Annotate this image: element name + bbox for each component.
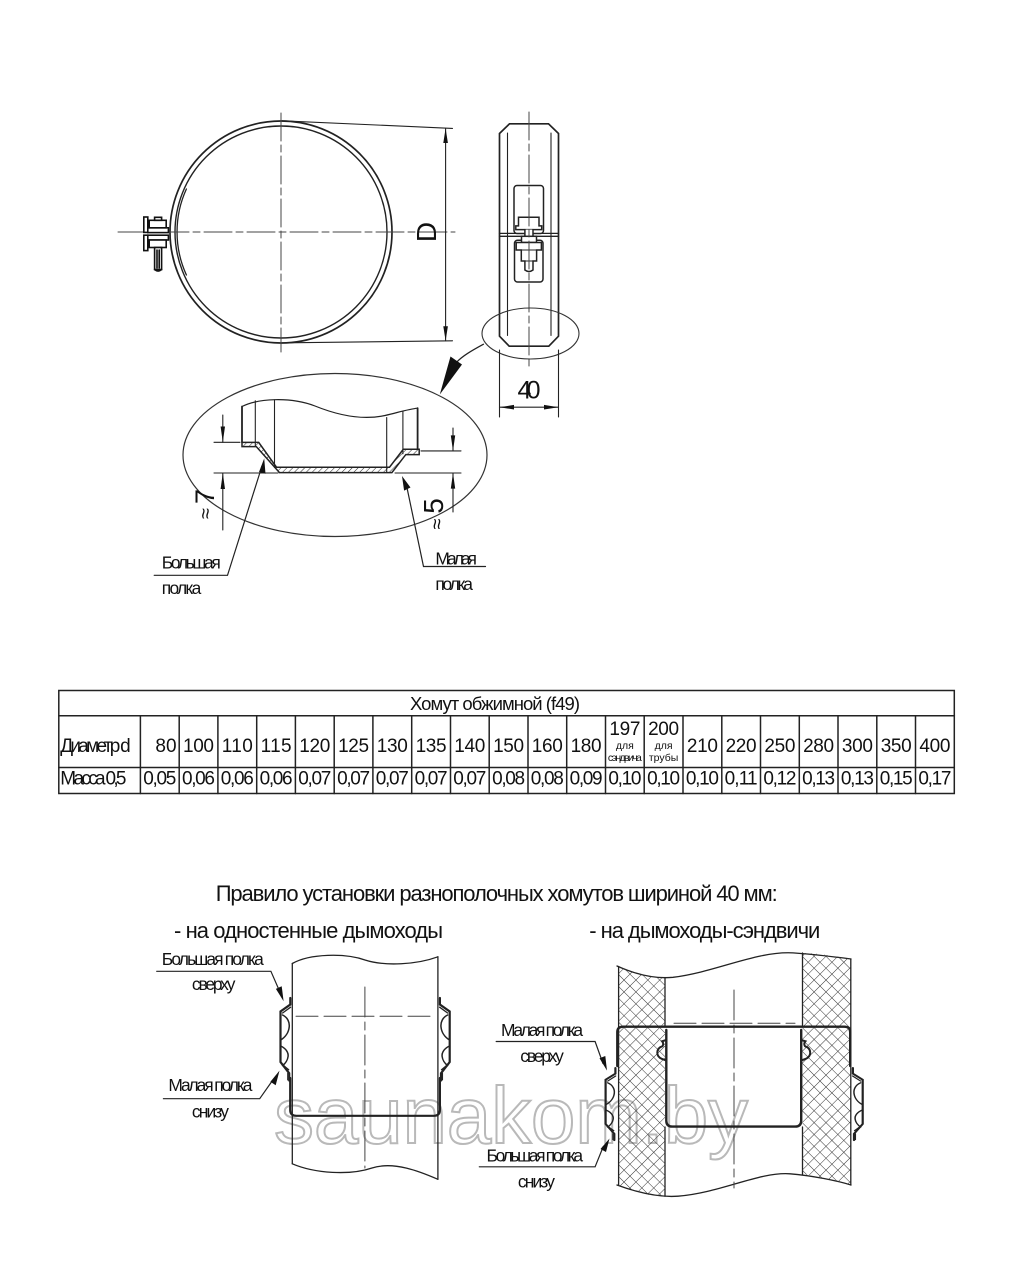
svg-text:Масса 0,5: Масса 0,5 [60, 769, 126, 790]
svg-text:0,13: 0,13 [841, 769, 874, 790]
svg-text:D: D [411, 222, 442, 242]
svg-text:5: 5 [418, 498, 449, 514]
svg-text:0,11: 0,11 [725, 769, 758, 790]
svg-text:40: 40 [518, 377, 541, 405]
svg-text:0,05: 0,05 [143, 769, 176, 790]
svg-text:снизу: снизу [192, 1102, 229, 1122]
svg-text:197: 197 [609, 719, 640, 740]
svg-text:0,10: 0,10 [647, 769, 680, 790]
svg-text:Малая: Малая [435, 549, 477, 569]
svg-text:130: 130 [377, 736, 408, 757]
svg-text:0,10: 0,10 [686, 769, 719, 790]
svg-text:0,06: 0,06 [182, 769, 215, 790]
svg-text:125: 125 [338, 736, 369, 757]
svg-text:снизу: снизу [518, 1172, 555, 1192]
svg-text:сверху: сверху [192, 974, 236, 994]
svg-text:для: для [616, 740, 634, 752]
svg-text:полка: полка [435, 574, 473, 594]
svg-text:140: 140 [454, 736, 485, 757]
svg-text:трубы: трубы [649, 752, 678, 764]
svg-text:0,06: 0,06 [260, 769, 293, 790]
svg-text:Большая полка: Большая полка [487, 1146, 584, 1166]
svg-text:350: 350 [881, 736, 912, 757]
svg-text:Малая полка: Малая полка [168, 1075, 252, 1095]
svg-text:Большая: Большая [162, 553, 221, 573]
svg-text:0,13: 0,13 [802, 769, 835, 790]
svg-text:0,10: 0,10 [608, 769, 641, 790]
svg-text:сверху: сверху [520, 1046, 564, 1066]
svg-text:135: 135 [416, 736, 447, 757]
svg-text:Диаметр d: Диаметр d [60, 736, 131, 757]
svg-text:150: 150 [493, 736, 524, 757]
svg-text:0,15: 0,15 [880, 769, 913, 790]
svg-text:250: 250 [764, 736, 795, 757]
svg-text:0,07: 0,07 [415, 769, 448, 790]
svg-text:200: 200 [648, 719, 679, 740]
svg-text:0,07: 0,07 [376, 769, 409, 790]
svg-text:115: 115 [261, 736, 292, 757]
svg-text:0,07: 0,07 [298, 769, 331, 790]
svg-text:220: 220 [726, 736, 757, 757]
svg-text:180: 180 [571, 736, 602, 757]
svg-text:100: 100 [183, 736, 214, 757]
svg-text:0,08: 0,08 [492, 769, 525, 790]
svg-text:сэндвича: сэндвича [608, 752, 642, 764]
svg-text:300: 300 [842, 736, 873, 757]
svg-text:280: 280 [803, 736, 834, 757]
svg-text:80: 80 [155, 736, 176, 757]
svg-text:Большая полка: Большая полка [162, 949, 264, 969]
svg-text:120: 120 [299, 736, 330, 757]
svg-text:160: 160 [532, 736, 563, 757]
svg-text:для: для [655, 740, 673, 752]
svg-text:- на одностенные дымоходы: - на одностенные дымоходы [174, 918, 443, 943]
svg-text:Хомут обжимной (f49): Хомут обжимной (f49) [410, 693, 580, 714]
svg-text:≈: ≈ [195, 508, 217, 519]
svg-text:0,06: 0,06 [221, 769, 254, 790]
svg-text:0,07: 0,07 [453, 769, 486, 790]
svg-text:полка: полка [162, 578, 202, 598]
svg-text:- на дымоходы-сэндвичи: - на дымоходы-сэндвичи [589, 918, 820, 943]
svg-text:0,07: 0,07 [337, 769, 370, 790]
svg-text:≈: ≈ [427, 518, 449, 529]
svg-text:Малая полка: Малая полка [501, 1020, 583, 1040]
svg-text:110: 110 [222, 736, 253, 757]
svg-text:0,12: 0,12 [763, 769, 796, 790]
svg-text:7: 7 [190, 489, 220, 504]
svg-text:0,17: 0,17 [918, 769, 951, 790]
svg-text:Правило установки разнополочны: Правило установки разнополочных хомутов … [216, 881, 778, 906]
svg-text:0,08: 0,08 [531, 769, 564, 790]
svg-text:400: 400 [919, 736, 950, 757]
svg-text:210: 210 [687, 736, 718, 757]
svg-text:0,09: 0,09 [570, 769, 603, 790]
